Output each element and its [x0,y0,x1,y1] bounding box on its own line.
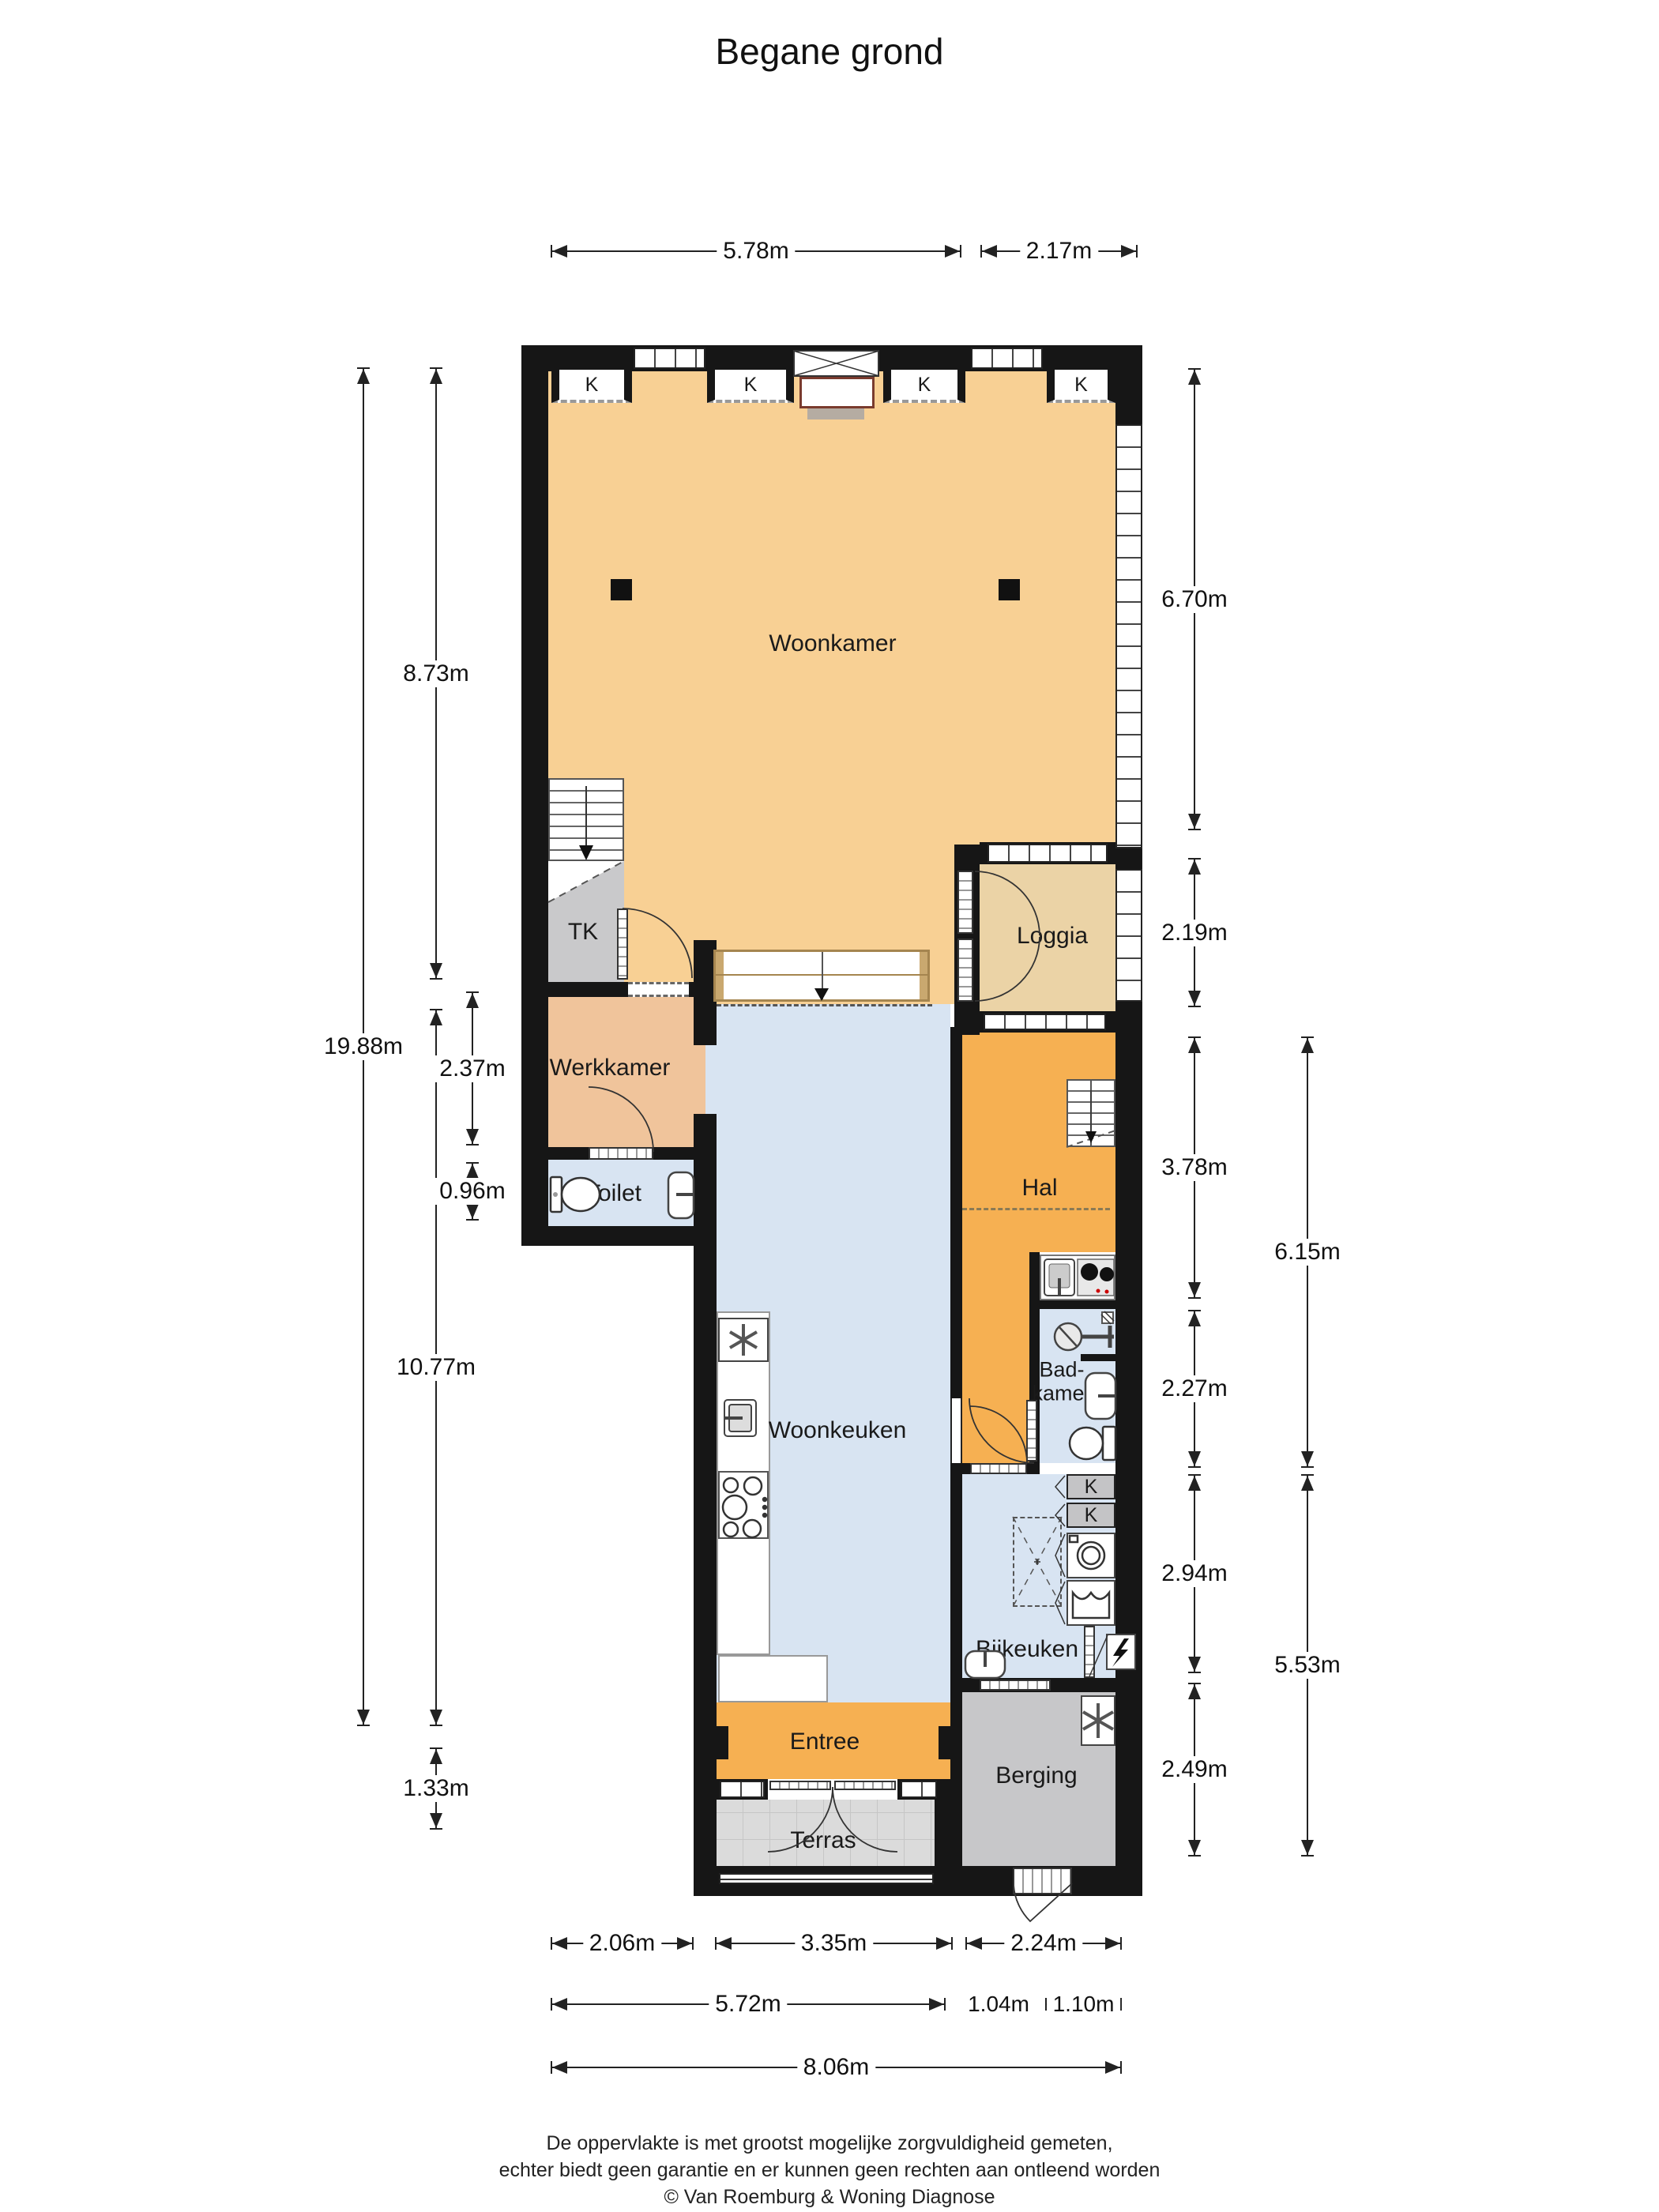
stove-icon [723,1477,766,1537]
hal-stair-arrow-head [1085,1131,1097,1143]
floorplan-page: Begane grond K K K K [0,0,1659,2212]
bifold-door-icon [1055,1534,1065,1577]
kitchenette-stove-icon [1078,1259,1114,1296]
terras-door-arc-right [833,1787,897,1852]
berging-door-arc [1014,1883,1072,1921]
washer-icon [1070,1536,1104,1569]
tk-door-arc [623,908,692,978]
badkamer-toilet-icon [1070,1427,1115,1460]
toilet-icon [551,1177,600,1212]
chimney-cross [793,351,879,376]
badkamer-door-arc [969,1398,1034,1463]
terras-door-arc-left [768,1787,833,1852]
badkamer-sink-icon [1085,1373,1115,1419]
bifold-door-icon [1055,1504,1065,1526]
fridge-icon [730,1324,757,1356]
shower-icon [1055,1323,1114,1350]
dryer-icon [1073,1593,1109,1618]
loggia-door-arc-top [975,871,1040,935]
bijkeuken-sink-icon [965,1651,1005,1678]
kitchenette-sink-icon [1044,1259,1074,1296]
stair-arrow-head [579,845,593,860]
optional-cabinet-mark [1034,1559,1040,1565]
hal-bijkeuken-door-arc [970,1406,1027,1463]
toilet-sink-icon [668,1172,694,1218]
loggia-door-arc-bottom [975,937,1040,1001]
freezer-icon [1083,1703,1113,1738]
bifold-door-icon [1055,1476,1065,1498]
plan-symbol-overlay [0,0,1659,2212]
electric-panel-icon [1112,1638,1129,1667]
kitchen-sink-icon [724,1400,756,1436]
werkkamer-door-arc [589,1087,653,1152]
corner-door-leaf [1089,1635,1108,1676]
vent-hatch [1101,1311,1114,1324]
